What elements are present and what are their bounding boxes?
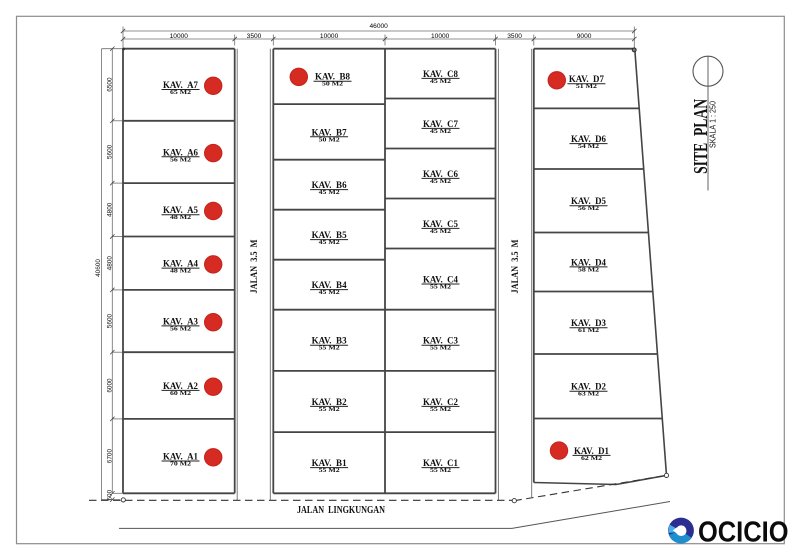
svg-text:OCICIO: OCICIO — [698, 516, 789, 548]
svg-text:45 M2: 45 M2 — [430, 228, 452, 235]
svg-text:50 M2: 50 M2 — [322, 81, 344, 88]
svg-text:5600: 5600 — [106, 144, 113, 159]
svg-text:55 M2: 55 M2 — [430, 284, 452, 291]
svg-text:48 M2: 48 M2 — [170, 268, 192, 275]
svg-text:10000: 10000 — [320, 33, 339, 40]
svg-text:62 M2: 62 M2 — [581, 455, 603, 462]
svg-text:55 M2: 55 M2 — [319, 345, 341, 352]
svg-text:JALAN 3.5 M: JALAN 3.5 M — [249, 239, 259, 293]
svg-text:10000: 10000 — [431, 33, 450, 40]
svg-text:55 M2: 55 M2 — [430, 467, 452, 474]
svg-text:JALAN LINGKUNGAN: JALAN LINGKUNGAN — [297, 505, 386, 516]
svg-text:45 M2: 45 M2 — [430, 178, 452, 185]
svg-text:56 M2: 56 M2 — [170, 325, 192, 332]
svg-text:45 M2: 45 M2 — [430, 128, 452, 135]
svg-text:3500: 3500 — [247, 33, 262, 40]
svg-text:4800: 4800 — [106, 202, 113, 217]
svg-text:SKALA 1 : 250: SKALA 1 : 250 — [709, 101, 718, 148]
svg-text:46000: 46000 — [370, 23, 389, 30]
svg-text:45 M2: 45 M2 — [319, 289, 341, 296]
svg-text:56 M2: 56 M2 — [170, 156, 192, 163]
svg-text:6500: 6500 — [106, 77, 113, 92]
svg-text:55 M2: 55 M2 — [319, 467, 341, 474]
svg-text:63 M2: 63 M2 — [578, 391, 600, 398]
svg-text:9000: 9000 — [577, 33, 592, 40]
svg-text:45 M2: 45 M2 — [319, 239, 341, 246]
svg-text:55 M2: 55 M2 — [430, 406, 452, 413]
svg-text:61 M2: 61 M2 — [578, 327, 600, 334]
svg-text:50 M2: 50 M2 — [319, 136, 341, 143]
svg-text:45 M2: 45 M2 — [430, 78, 452, 85]
svg-text:55 M2: 55 M2 — [430, 345, 452, 352]
svg-text:600: 600 — [106, 489, 113, 500]
svg-text:5600: 5600 — [106, 313, 113, 328]
svg-text:10000: 10000 — [170, 33, 189, 40]
svg-text:45 M2: 45 M2 — [319, 189, 341, 196]
svg-text:JALAN 3.5 M: JALAN 3.5 M — [510, 239, 520, 293]
svg-text:6000: 6000 — [106, 378, 113, 393]
svg-text:6700: 6700 — [106, 449, 113, 464]
svg-text:40600: 40600 — [95, 259, 102, 277]
svg-text:60 M2: 60 M2 — [170, 390, 192, 397]
svg-text:65 M2: 65 M2 — [170, 89, 192, 96]
svg-text:56 M2: 56 M2 — [578, 205, 600, 212]
svg-text:55 M2: 55 M2 — [319, 406, 341, 413]
svg-text:54 M2: 54 M2 — [578, 143, 600, 150]
svg-text:70 M2: 70 M2 — [170, 461, 192, 468]
svg-text:51 M2: 51 M2 — [576, 83, 598, 90]
svg-text:4800: 4800 — [106, 256, 113, 271]
svg-text:58 M2: 58 M2 — [578, 266, 600, 273]
svg-text:48 M2: 48 M2 — [170, 214, 192, 221]
svg-text:3500: 3500 — [507, 33, 522, 40]
